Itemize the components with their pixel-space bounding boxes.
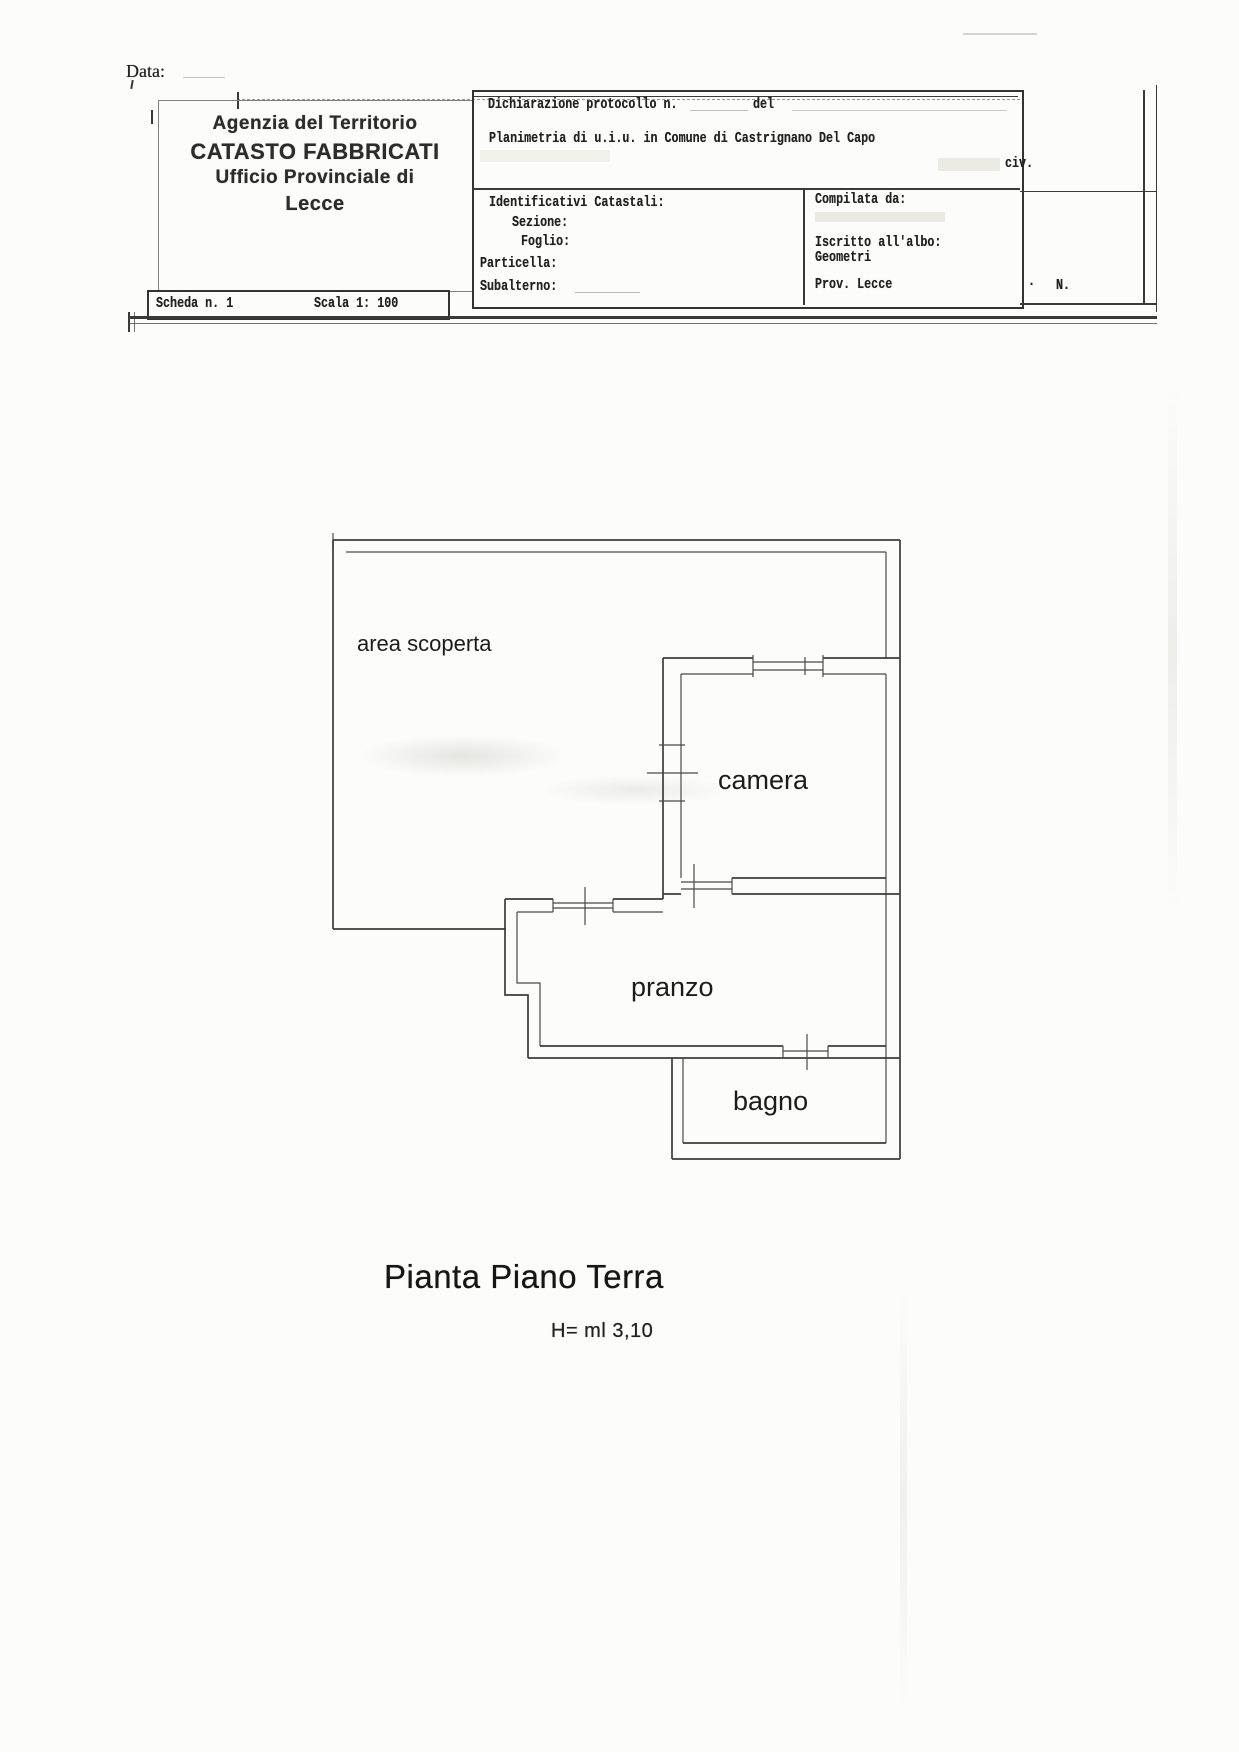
office-catasto-title: CATASTO FABBRICATI <box>158 139 472 165</box>
plan-height-note: H= ml 3,10 <box>551 1320 653 1343</box>
compilata-label: Compilata da: <box>815 192 906 207</box>
office-provincial-line: Ufficio Provinciale di <box>158 167 472 189</box>
form-horizontal-divider <box>472 188 1020 190</box>
declaration-label: Dichiarazione protocollo n. <box>488 97 678 112</box>
prov-label: Prov. Lecce <box>815 277 892 292</box>
identificativi-title: Identificativi Catastali: <box>489 195 665 210</box>
floor-plan-drawing: area scoperta camera pranzo bagno <box>280 500 960 1200</box>
form-vertical-divider <box>803 188 805 305</box>
header-bottom-rule-thin <box>128 323 1157 324</box>
camera-door-sill <box>681 878 732 894</box>
prov-dot: · <box>1028 277 1035 292</box>
office-name: Agenzia del Territorio <box>158 113 472 135</box>
protocol-blank-line <box>690 110 748 111</box>
scheda-label: Scheda n. 1 <box>156 296 233 311</box>
subalterno-blank-line <box>575 292 640 293</box>
page-right-inner-line <box>1143 90 1145 305</box>
date-label: Data: <box>126 61 165 82</box>
header-bottom-rule-thick <box>128 316 1157 319</box>
pranzo-top-door-sill <box>553 899 613 912</box>
date-comma-mark <box>130 80 134 89</box>
rule-left-tick-2 <box>134 312 135 332</box>
plan-title: Pianta Piano Terra <box>384 1258 664 1296</box>
camera-left-wall-opening-ticks <box>647 745 698 801</box>
del-label: del <box>753 97 774 112</box>
rule-left-tick-1 <box>128 312 130 332</box>
iscritto-label: Iscritto all'albo: <box>815 235 941 250</box>
room-label-pranzo: pranzo <box>631 972 714 1002</box>
foglio-label: Foglio: <box>521 234 570 249</box>
right-cell-bottom-line <box>1020 303 1157 305</box>
scan-streak-right <box>1168 380 1177 920</box>
office-city: Lecce <box>158 193 472 216</box>
room-label-area-scoperta: area scoperta <box>357 631 492 656</box>
civ-label: civ. <box>1005 156 1033 171</box>
scan-streak-right-lower <box>900 1290 907 1710</box>
iscritto-value: Geometri <box>815 250 871 265</box>
planimetria-line: Planimetria di u.i.u. in Comune di Castr… <box>489 131 875 146</box>
office-panel-left-tick <box>151 110 153 124</box>
del-blank-line <box>792 110 1007 111</box>
right-cell-divider <box>1020 191 1157 192</box>
scan-artifact-top-right <box>963 33 1037 35</box>
sezione-label: Sezione: <box>512 215 568 230</box>
scanned-cadastral-sheet: Data: Agenzia del Territorio CATASTO FAB… <box>0 0 1239 1752</box>
scala-label: Scala 1: 100 <box>314 296 398 311</box>
room-label-bagno: bagno <box>733 1086 808 1116</box>
n-label: N. <box>1056 278 1070 293</box>
subalterno-label: Subalterno: <box>480 279 557 294</box>
date-underline <box>183 77 225 78</box>
particella-label: Particella: <box>480 256 557 271</box>
room-label-camera: camera <box>718 765 809 795</box>
page-right-outer-line <box>1156 85 1157 312</box>
camera-window <box>753 655 823 677</box>
pranzo-bottom-door-sill <box>783 1046 828 1058</box>
